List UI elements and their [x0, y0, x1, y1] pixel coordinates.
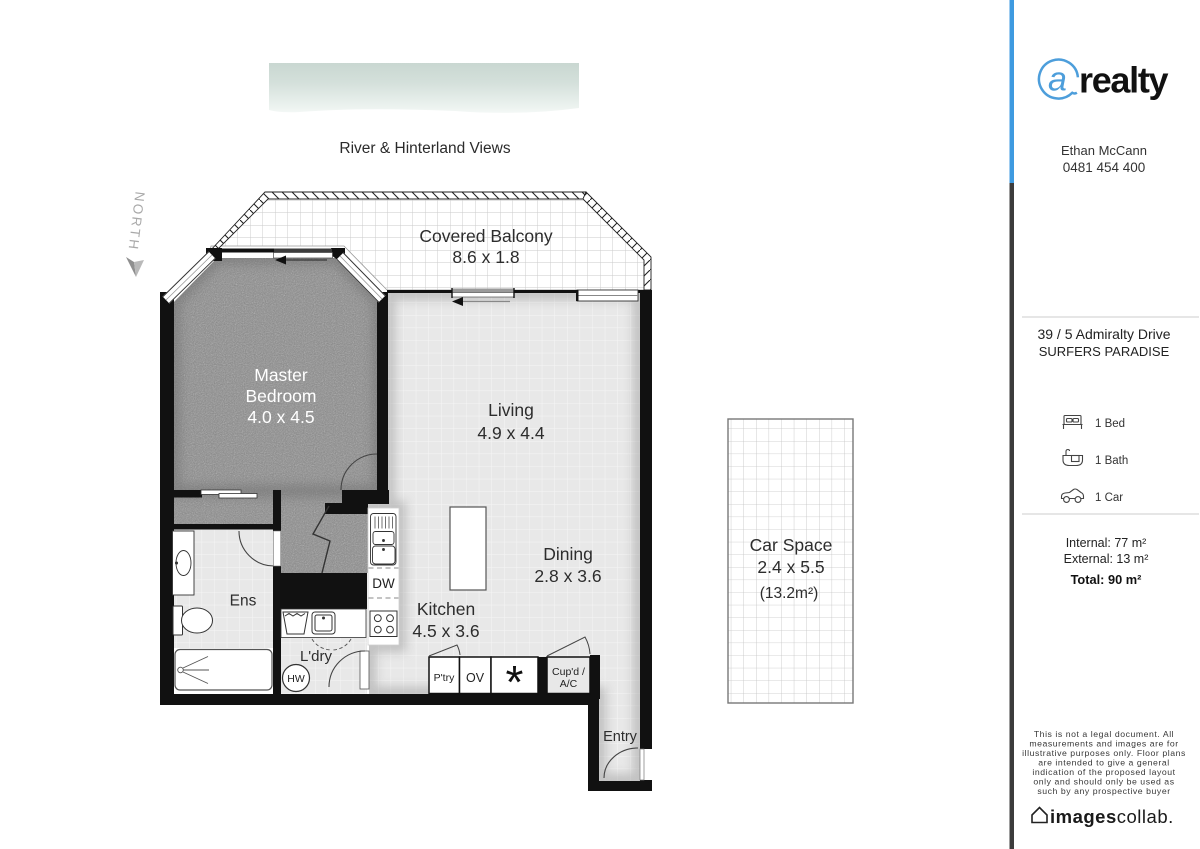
svg-text:External: 13 m²: External: 13 m² — [1064, 552, 1149, 566]
svg-text:Covered Balcony: Covered Balcony — [419, 226, 553, 246]
svg-text:only and should only be used a: only and should only be used as — [1033, 777, 1174, 787]
svg-text:such by any prospective buyer: such by any prospective buyer — [1037, 786, 1170, 796]
svg-text:1 Bed: 1 Bed — [1095, 418, 1125, 430]
svg-text:Cup'd /: Cup'd / — [552, 666, 585, 678]
svg-text:2.8 x 3.6: 2.8 x 3.6 — [534, 566, 601, 586]
svg-text:8.6 x 1.8: 8.6 x 1.8 — [452, 247, 519, 267]
svg-text:1 Car: 1 Car — [1095, 492, 1123, 504]
svg-text:Dining: Dining — [543, 544, 593, 564]
svg-text:39 / 5 Admiralty Drive: 39 / 5 Admiralty Drive — [1037, 326, 1170, 342]
svg-text:measurements and images are fo: measurements and images are for — [1029, 739, 1178, 749]
svg-text:L'dry: L'dry — [300, 648, 333, 665]
svg-text:A/C: A/C — [560, 678, 578, 690]
svg-text:HW: HW — [287, 673, 305, 685]
svg-text:Master: Master — [254, 365, 308, 385]
svg-text:River & Hinterland Views: River & Hinterland Views — [339, 140, 510, 157]
svg-text:are intended to give a general: are intended to give a general — [1038, 758, 1169, 768]
svg-text:Entry: Entry — [603, 729, 638, 745]
svg-text:imagescollab.: imagescollab. — [1050, 806, 1174, 827]
svg-text:2.4 x 5.5: 2.4 x 5.5 — [757, 557, 824, 577]
svg-text:Ens: Ens — [230, 593, 257, 610]
svg-text:4.9 x 4.4: 4.9 x 4.4 — [477, 423, 544, 443]
svg-text:0481 454 400: 0481 454 400 — [1063, 160, 1146, 175]
svg-text:Bedroom: Bedroom — [245, 386, 316, 406]
svg-text:OV: OV — [466, 671, 485, 685]
svg-text:Car Space: Car Space — [750, 535, 833, 555]
svg-text:Total: 90 m²: Total: 90 m² — [1071, 572, 1142, 587]
svg-text:Living: Living — [488, 400, 534, 420]
svg-text:This is not a legal document.: This is not a legal document. All — [1034, 729, 1174, 739]
svg-text:*: * — [506, 656, 524, 708]
svg-text:Internal: 77 m²: Internal: 77 m² — [1066, 536, 1147, 550]
svg-text:1 Bath: 1 Bath — [1095, 455, 1128, 467]
svg-text:(13.2m²): (13.2m²) — [760, 585, 819, 602]
svg-text:realty: realty — [1079, 60, 1169, 101]
svg-text:illustrative purposes only. Fl: illustrative purposes only. Floor plans — [1022, 748, 1186, 758]
svg-text:4.5 x 3.6: 4.5 x 3.6 — [412, 621, 479, 641]
svg-text:a: a — [1048, 61, 1067, 99]
svg-text:P'try: P'try — [434, 672, 455, 684]
svg-text:Kitchen: Kitchen — [417, 599, 475, 619]
svg-text:DW: DW — [372, 576, 395, 591]
svg-text:SURFERS PARADISE: SURFERS PARADISE — [1039, 344, 1170, 359]
svg-text:4.0 x 4.5: 4.0 x 4.5 — [247, 407, 314, 427]
svg-text:indication of the proposed lay: indication of the proposed layout — [1032, 767, 1175, 777]
svg-text:Ethan McCann: Ethan McCann — [1061, 143, 1147, 158]
